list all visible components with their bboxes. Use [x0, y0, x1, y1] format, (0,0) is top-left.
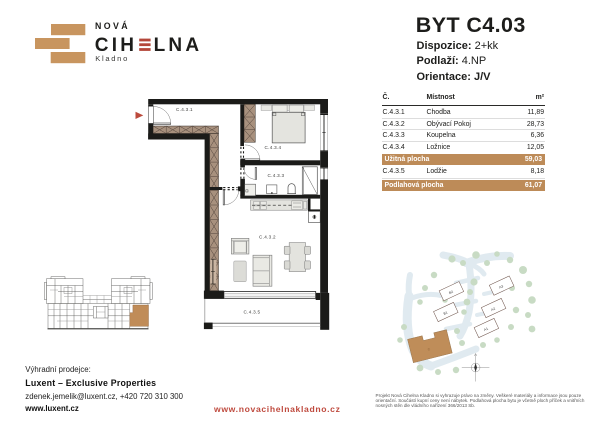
svg-text:C.4.3.5: C.4.3.5	[244, 310, 261, 315]
svg-text:C.4.3.2: C.4.3.2	[259, 235, 276, 240]
svg-text:C.4.3.4: C.4.3.4	[265, 145, 282, 150]
svg-text:C.4.3.3: C.4.3.3	[268, 173, 285, 178]
svg-text:C.4.3.1: C.4.3.1	[176, 107, 193, 112]
